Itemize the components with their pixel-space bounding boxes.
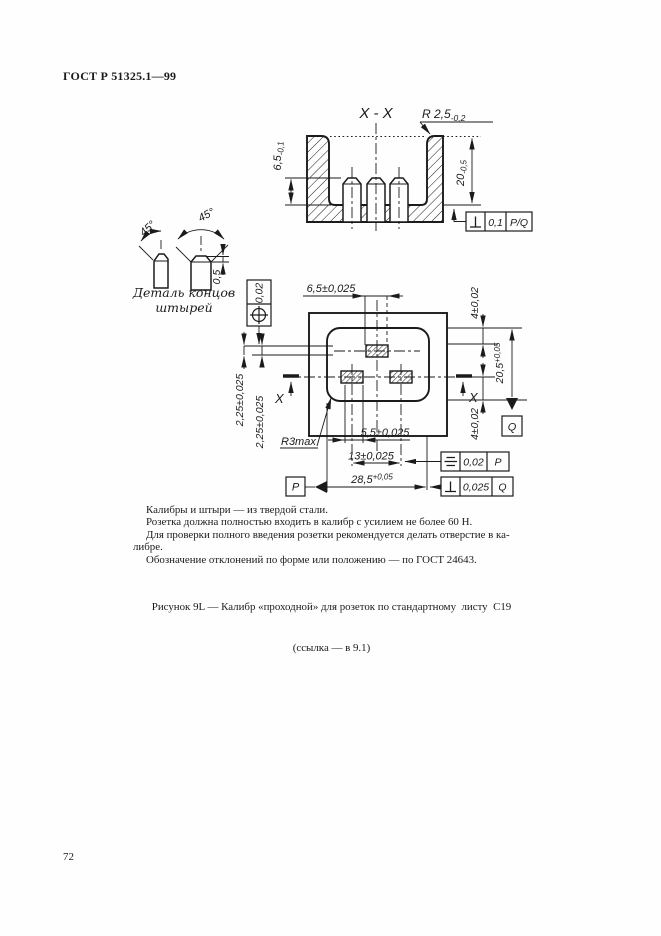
pin-left-outline <box>154 254 168 288</box>
section-marker-left: X <box>274 391 285 406</box>
figure-caption-line2: (ссылка — в 9.1) <box>133 642 530 656</box>
note-line: либре. <box>133 541 530 553</box>
dim-right-top-label: 4±0,02 <box>469 287 481 319</box>
depth-dimension: 20-0,5 <box>455 159 469 187</box>
datum-q-triangle <box>506 398 518 410</box>
gauge-outer-outline <box>309 313 447 436</box>
angle-left-label: 45° <box>138 218 159 238</box>
gauge-pins-section <box>343 178 408 222</box>
notes-block: Калибры и штыри — из твердой стали. Розе… <box>133 504 530 566</box>
tol-frame-value: 0,1 <box>488 217 503 229</box>
note-line: Обозначение отклонений по форме или поло… <box>133 554 530 566</box>
gauge-cavity-outline <box>327 328 429 401</box>
offset1-label: 2,25±0,025 <box>234 374 246 428</box>
radius-dimension: R 2,5-0,2 <box>422 107 466 123</box>
section-marker-right: X <box>468 390 479 405</box>
dim-5-5-label: 5,5±0,025 <box>361 427 411 439</box>
note-line: Розетка должна полностью входить в калиб… <box>133 516 530 528</box>
datum-p-triangle <box>315 481 327 493</box>
detail-caption-line2: штырей <box>155 300 212 315</box>
note-line: Для проверки полного введения розетки ре… <box>133 529 530 541</box>
dim-28-5-label: 28,5+0,05 <box>350 473 393 487</box>
dim-right-height-label: 20,5+0,05 <box>493 342 506 384</box>
document-page: ГОСТ Р 51325.1—99 <box>0 0 661 936</box>
technical-drawing: 0,1 P/Q X - X R 2,5-0,2 6,5-0,1 20-0,5 <box>0 0 661 936</box>
dim-right-bottom-label: 4±0,02 <box>469 408 481 440</box>
section-title: X - X <box>358 105 393 122</box>
perp-frame-value: 0,025 <box>463 482 489 494</box>
figure-caption-line1: Рисунок 9L — Калибр «проходной» для розе… <box>133 601 530 615</box>
chamfer-dimension: 0,5 <box>211 270 223 285</box>
radius-note-label: R3max <box>281 436 316 448</box>
figure-caption: Рисунок 9L — Калибр «проходной» для розе… <box>133 574 530 682</box>
page-number: 72 <box>63 851 74 863</box>
offset2-label: 2,25±0,025 <box>254 396 266 450</box>
note-line: Калибры и штыри — из твердой стали. <box>133 504 530 516</box>
perp-frame-datum: Q <box>498 482 506 494</box>
detail-caption-line1: Деталь концов <box>132 285 235 300</box>
tol-frame-datum: P/Q <box>510 217 528 229</box>
dim-13-label: 13±0,025 <box>348 451 395 463</box>
pin-height-dimension: 6,5-0,1 <box>272 141 286 170</box>
sym-frame-value: 0,02 <box>463 457 484 469</box>
dim-top-label: 6,5±0,025 <box>307 283 357 295</box>
datum-q-label: Q <box>508 422 517 434</box>
angle-right-label: 45° <box>196 206 217 225</box>
datum-p-label: P <box>292 482 300 494</box>
sym-frame-datum: P <box>494 457 501 469</box>
position-frame-value: 0,02 <box>254 283 266 304</box>
